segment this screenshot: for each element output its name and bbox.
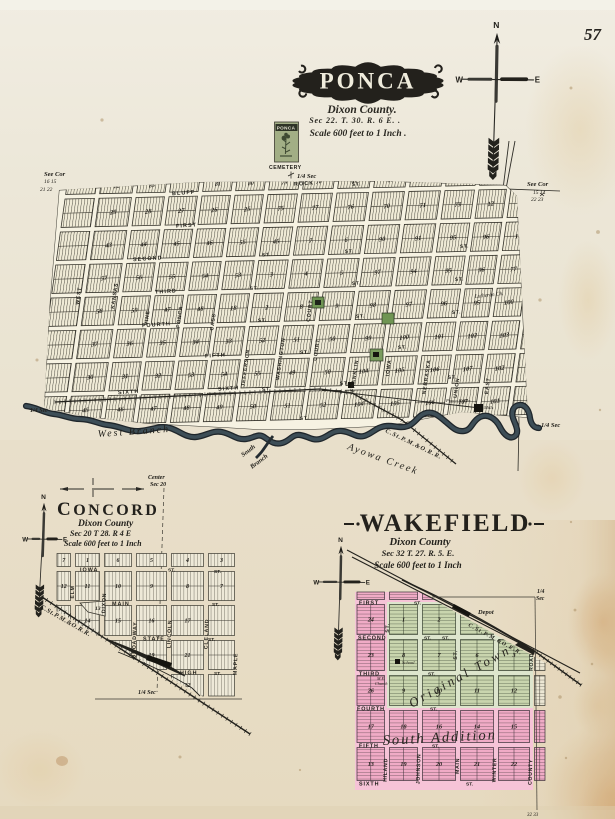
- svg-text:See Cor: See Cor: [44, 171, 66, 178]
- svg-text:97: 97: [374, 269, 381, 277]
- svg-text:27: 27: [177, 207, 185, 215]
- svg-text:ST.: ST.: [424, 636, 431, 642]
- svg-text:8: 8: [402, 652, 405, 659]
- svg-text:70: 70: [384, 203, 391, 211]
- svg-text:30: 30: [86, 374, 94, 382]
- svg-text:59: 59: [131, 307, 138, 315]
- svg-text:76: 76: [348, 203, 355, 211]
- svg-text:E: E: [535, 75, 540, 84]
- svg-text:22: 22: [510, 761, 517, 768]
- svg-text:13: 13: [95, 606, 101, 612]
- svg-text:Scale 600 feet to 1 Inch: Scale 600 feet to 1 Inch: [64, 539, 142, 548]
- svg-text:Sec 20 T 28. R 4 E: Sec 20 T 28. R 4 E: [70, 529, 131, 538]
- svg-text:98: 98: [370, 302, 377, 310]
- svg-text:43: 43: [104, 242, 112, 250]
- svg-text:ELM: ELM: [70, 585, 76, 599]
- svg-text:JOHNSON: JOHNSON: [415, 754, 422, 785]
- svg-text:ST.: ST.: [340, 380, 350, 387]
- svg-text:8: 8: [186, 584, 189, 590]
- svg-text:25: 25: [243, 206, 251, 214]
- svg-text:Depot: Depot: [477, 609, 494, 616]
- svg-text:W: W: [456, 75, 464, 84]
- svg-text:81: 81: [215, 181, 221, 188]
- svg-text:MAIN: MAIN: [455, 758, 462, 774]
- svg-text:2: 2: [436, 617, 440, 624]
- svg-text:11: 11: [85, 584, 91, 590]
- svg-text:N: N: [493, 20, 499, 30]
- svg-text:ST.: ST.: [430, 707, 437, 713]
- svg-text:24: 24: [367, 617, 374, 624]
- svg-text:49: 49: [215, 404, 223, 412]
- svg-text:95: 95: [474, 299, 481, 307]
- svg-text:Center: Center: [148, 475, 165, 481]
- svg-text:57: 57: [584, 25, 603, 44]
- svg-text:17: 17: [185, 619, 192, 625]
- svg-text:CLELAND: CLELAND: [203, 619, 210, 650]
- svg-text:34: 34: [192, 338, 200, 346]
- svg-text:See Cor: See Cor: [527, 181, 549, 188]
- svg-text:9: 9: [150, 584, 153, 590]
- svg-text:57: 57: [101, 275, 108, 283]
- svg-text:COUNTY: COUNTY: [528, 759, 535, 785]
- svg-text:73: 73: [455, 201, 462, 209]
- svg-text:1/4: 1/4: [537, 589, 545, 595]
- svg-text:51: 51: [294, 336, 300, 344]
- svg-text:ST.: ST.: [345, 248, 355, 255]
- svg-text:11: 11: [474, 688, 480, 695]
- svg-text:E: E: [366, 579, 370, 586]
- svg-text:ST.: ST.: [212, 602, 219, 608]
- svg-text:23: 23: [367, 652, 374, 659]
- svg-text:18: 18: [400, 724, 406, 731]
- svg-text:ST.: ST.: [300, 349, 310, 356]
- svg-text:26: 26: [210, 206, 218, 214]
- svg-text:51: 51: [284, 402, 290, 410]
- svg-text:19: 19: [400, 761, 406, 768]
- svg-text:77: 77: [510, 266, 517, 274]
- svg-text:Sec 22. T. 30. R. 6 E. .: Sec 22. T. 30. R. 6 E. .: [309, 116, 401, 125]
- svg-text:ST.: ST.: [453, 650, 459, 660]
- svg-text:ST.: ST.: [214, 569, 221, 575]
- svg-text:96: 96: [441, 300, 448, 308]
- svg-text:Church: Church: [375, 681, 387, 686]
- svg-text:16: 16: [149, 619, 155, 625]
- svg-text:96: 96: [478, 266, 485, 274]
- svg-text:FIRST: FIRST: [359, 601, 379, 607]
- svg-text:53: 53: [188, 371, 195, 379]
- svg-text:ST.: ST.: [398, 344, 408, 351]
- svg-text:32 33: 32 33: [527, 813, 539, 818]
- svg-text:15: 15: [511, 724, 517, 731]
- svg-text:ST.: ST.: [414, 601, 421, 607]
- svg-text:1/4 Sec: 1/4 Sec: [138, 690, 156, 696]
- svg-text:6: 6: [117, 558, 120, 564]
- svg-text:94: 94: [410, 268, 417, 276]
- svg-text:ST.: ST.: [352, 181, 362, 188]
- svg-text:MAPLE: MAPLE: [233, 653, 240, 675]
- svg-text:ST.: ST.: [300, 415, 310, 422]
- svg-text:1: 1: [86, 558, 89, 564]
- svg-text:26: 26: [367, 688, 375, 695]
- svg-text:55: 55: [169, 273, 176, 281]
- svg-text:ST.: ST.: [352, 280, 362, 287]
- svg-text:N: N: [41, 494, 46, 501]
- svg-text:WINTER: WINTER: [492, 758, 499, 783]
- svg-text:HIGH: HIGH: [180, 671, 197, 677]
- svg-text:SECOND: SECOND: [358, 636, 386, 642]
- svg-text:49: 49: [288, 369, 296, 377]
- svg-text:21 22: 21 22: [40, 187, 53, 193]
- svg-text:48: 48: [196, 305, 204, 313]
- svg-text:N: N: [338, 537, 343, 544]
- svg-text:15: 15: [115, 619, 121, 625]
- svg-text:ST.: ST.: [460, 243, 470, 250]
- svg-text:ST.: ST.: [258, 317, 268, 324]
- svg-text:1/4 Sec: 1/4 Sec: [297, 173, 316, 180]
- svg-text:16 15: 16 15: [44, 179, 57, 185]
- svg-text:FOURTH: FOURTH: [357, 707, 385, 713]
- svg-text:21: 21: [184, 653, 191, 659]
- svg-text:54: 54: [221, 371, 228, 379]
- svg-text:10: 10: [115, 584, 121, 590]
- svg-text:35: 35: [159, 339, 167, 347]
- svg-text:ST.: ST.: [452, 309, 462, 316]
- svg-text:29: 29: [109, 209, 117, 217]
- svg-text:36: 36: [126, 340, 134, 348]
- svg-text:Scale 600 feet to 1 Inch .: Scale 600 feet to 1 Inch .: [310, 129, 407, 139]
- svg-text:77: 77: [312, 204, 319, 212]
- svg-text:Dixon County: Dixon County: [389, 537, 451, 548]
- svg-text:91: 91: [415, 235, 421, 243]
- svg-text:ST.: ST.: [356, 313, 366, 320]
- svg-text:99: 99: [365, 335, 372, 343]
- svg-text:4: 4: [185, 558, 189, 564]
- svg-text:Ponca Roller: Ponca Roller: [445, 398, 471, 403]
- svg-text:IOWA: IOWA: [80, 568, 98, 574]
- svg-text:54: 54: [202, 272, 209, 280]
- svg-text:52: 52: [320, 401, 327, 409]
- svg-text:96: 96: [483, 233, 490, 241]
- svg-text:STATE: STATE: [143, 637, 165, 643]
- svg-text:50: 50: [324, 368, 331, 376]
- svg-text:DIXON: DIXON: [101, 593, 108, 614]
- svg-text:47: 47: [163, 306, 171, 314]
- svg-text:Dixon County.: Dixon County.: [326, 104, 396, 116]
- svg-text:46: 46: [116, 406, 124, 414]
- svg-text:5: 5: [150, 558, 153, 564]
- svg-text:W: W: [313, 579, 319, 586]
- svg-text:E: E: [63, 536, 67, 543]
- svg-text:52: 52: [259, 337, 266, 345]
- svg-text:95: 95: [450, 234, 457, 242]
- svg-text:50: 50: [329, 335, 336, 343]
- svg-text:32: 32: [154, 372, 162, 380]
- svg-text:Sec 20: Sec 20: [150, 482, 166, 488]
- svg-text:SIXTH: SIXTH: [359, 782, 379, 788]
- svg-text:Mills: Mills: [483, 405, 494, 410]
- svg-text:ST.: ST.: [168, 568, 175, 574]
- svg-text:CONCORD: CONCORD: [57, 499, 159, 520]
- svg-text:3: 3: [219, 558, 223, 564]
- svg-text:1/4 Sec: 1/4 Sec: [541, 422, 560, 429]
- svg-text:ST.: ST.: [455, 276, 465, 283]
- svg-text:9: 9: [402, 688, 405, 695]
- svg-text:22 23: 22 23: [531, 197, 544, 203]
- svg-text:12: 12: [61, 584, 67, 590]
- svg-text:ST.: ST.: [442, 636, 449, 642]
- svg-text:ST.: ST.: [466, 782, 473, 788]
- svg-text:97: 97: [406, 301, 413, 309]
- svg-text:46: 46: [205, 239, 213, 247]
- svg-text:21: 21: [473, 761, 480, 768]
- svg-text:75: 75: [278, 205, 285, 213]
- svg-text:31: 31: [121, 373, 128, 381]
- svg-text:12: 12: [511, 688, 517, 695]
- svg-text:PONCA: PONCA: [277, 126, 296, 131]
- svg-text:ST.: ST.: [385, 623, 391, 633]
- svg-text:Sec 32 T. 27. R. 5. E.: Sec 32 T. 27. R. 5. E.: [382, 548, 455, 558]
- svg-text:ST.: ST.: [250, 285, 260, 292]
- svg-text:Sec: Sec: [536, 596, 545, 602]
- svg-text:56: 56: [136, 274, 143, 282]
- svg-text:18: 18: [230, 305, 237, 313]
- svg-text:45: 45: [272, 238, 280, 246]
- svg-text:PONCA: PONCA: [320, 69, 417, 94]
- svg-text:48: 48: [182, 404, 190, 412]
- svg-text:W: W: [22, 536, 28, 543]
- svg-text:37: 37: [91, 341, 99, 349]
- svg-text:45: 45: [81, 407, 89, 415]
- svg-text:14: 14: [85, 619, 91, 625]
- svg-text:CEMETERY: CEMETERY: [269, 165, 302, 171]
- svg-text:ST.: ST.: [262, 252, 272, 259]
- svg-text:FIFTH: FIFTH: [359, 744, 379, 750]
- svg-text:58: 58: [96, 308, 103, 316]
- svg-text:44: 44: [139, 241, 147, 249]
- svg-text:12: 12: [488, 200, 495, 208]
- svg-text:95: 95: [445, 267, 452, 275]
- svg-text:17: 17: [368, 724, 375, 731]
- svg-text:53: 53: [235, 272, 242, 280]
- svg-text:ST.: ST.: [428, 672, 435, 678]
- svg-text:55: 55: [254, 370, 261, 378]
- svg-text:School: School: [402, 660, 415, 665]
- svg-text:ROAD: ROAD: [529, 653, 536, 671]
- svg-text:55: 55: [239, 239, 246, 247]
- svg-text:WAKEFIELD: WAKEFIELD: [360, 510, 531, 537]
- svg-text:1/4 Sec: 1/4 Sec: [30, 408, 48, 414]
- svg-text:Scale 600 feet to 1 Inch: Scale 600 feet to 1 Inch: [374, 560, 461, 570]
- svg-text:LINCOLN: LINCOLN: [167, 620, 174, 649]
- svg-text:47: 47: [149, 405, 157, 413]
- svg-text:HILAND: HILAND: [383, 758, 390, 782]
- svg-text:45: 45: [172, 240, 180, 248]
- svg-text:13: 13: [368, 761, 374, 768]
- svg-text:20: 20: [435, 761, 442, 768]
- svg-text:Dixon County: Dixon County: [77, 519, 134, 529]
- svg-text:50: 50: [250, 403, 257, 411]
- svg-text:MAIN: MAIN: [112, 602, 130, 608]
- svg-text:71: 71: [420, 202, 426, 210]
- svg-text:1: 1: [402, 617, 405, 624]
- svg-text:28: 28: [144, 208, 152, 216]
- svg-text:33: 33: [225, 338, 233, 346]
- svg-text:90: 90: [379, 236, 386, 244]
- svg-text:ST.: ST.: [214, 671, 221, 677]
